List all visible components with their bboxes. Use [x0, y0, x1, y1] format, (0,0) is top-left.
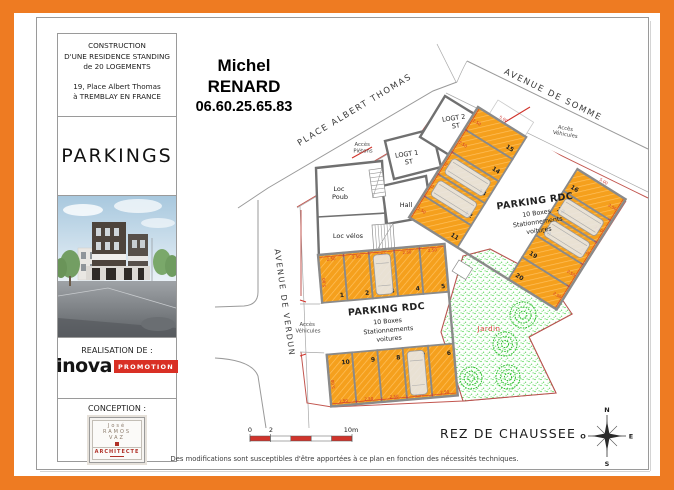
architect-name: VAZ — [93, 435, 141, 441]
architect-title: ARCHITECTE — [93, 447, 141, 455]
project-line: CONSTRUCTION — [58, 41, 176, 52]
conception-box: CONCEPTION : José RAMOS VAZ ARCHITECTE — [57, 398, 177, 462]
parking-box-number: 8 — [396, 354, 401, 361]
scale-bar-segment — [311, 436, 331, 441]
document-title-box: PARKINGS — [57, 116, 177, 196]
project-address: 19, Place Albert Thomas — [58, 82, 176, 93]
parking-box-number: 10 — [341, 359, 350, 367]
scale-bar-segment — [270, 436, 290, 441]
disclaimer-text: Des modifications sont susceptibles d'êt… — [45, 455, 644, 463]
parking-box-number: 4 — [415, 285, 420, 292]
scale-bar-segment — [332, 436, 352, 441]
conception-label: CONCEPTION : — [58, 404, 176, 413]
car-glyph — [373, 254, 393, 295]
brand-name: inova — [56, 358, 112, 374]
realisation-box: REALISATION DE : inova PROMOTION — [57, 337, 177, 399]
parking-box-number: 2 — [365, 290, 370, 297]
contact-last-name: RENARD — [180, 76, 308, 97]
project-line: de 20 LOGEMENTS — [58, 62, 176, 73]
label-loc-velos: Loc vélos — [333, 232, 364, 240]
parking-box-number: 5 — [441, 283, 446, 290]
label-acces-pietons: Accès Piétons — [353, 141, 372, 155]
scale-bar-segments — [250, 436, 352, 441]
garden-label: Jardin — [477, 325, 501, 333]
inova-promotion-logo: inova PROMOTION — [58, 358, 176, 374]
scale-tick-10m: 10m — [344, 426, 359, 434]
scale-tick-0: 0 — [248, 426, 252, 434]
project-address: à TREMBLAY EN FRANCE — [58, 92, 176, 103]
building-render-image — [58, 196, 176, 337]
parking-box-number: 1 — [340, 292, 345, 299]
project-info-box: CONSTRUCTION D'UNE RESIDENCE STANDING de… — [57, 33, 177, 117]
scale-bar-segment — [291, 436, 311, 441]
contact-block: Michel RENARD 06.60.25.65.83 — [180, 55, 308, 117]
realisation-label: REALISATION DE : — [58, 346, 176, 355]
plan-sheet-page: PLACE ALBERT THOMAS AVENUE DE SOMME AVEN… — [0, 0, 674, 490]
parking-box-number: 9 — [371, 356, 376, 363]
brand-badge: PROMOTION — [114, 360, 178, 373]
architect-logo-square — [115, 442, 119, 446]
building-render-box — [57, 195, 177, 338]
label-hall: Hall — [400, 201, 413, 209]
car-glyph — [407, 350, 428, 395]
scale-bar-segment — [250, 436, 270, 441]
level-label: REZ DE CHAUSSEE — [408, 426, 608, 441]
contact-first-name: Michel — [180, 55, 308, 76]
compass-east: E — [629, 433, 633, 441]
project-line: D'UNE RESIDENCE STANDING — [58, 52, 176, 63]
label-loc-poub: Loc Poub — [332, 185, 348, 201]
contact-phone: 06.60.25.65.83 — [180, 97, 308, 117]
document-title: PARKINGS — [61, 145, 173, 167]
scale-tick-2: 2 — [269, 426, 273, 434]
compass-north: N — [604, 406, 609, 414]
parking-box-number: 6 — [447, 350, 452, 357]
